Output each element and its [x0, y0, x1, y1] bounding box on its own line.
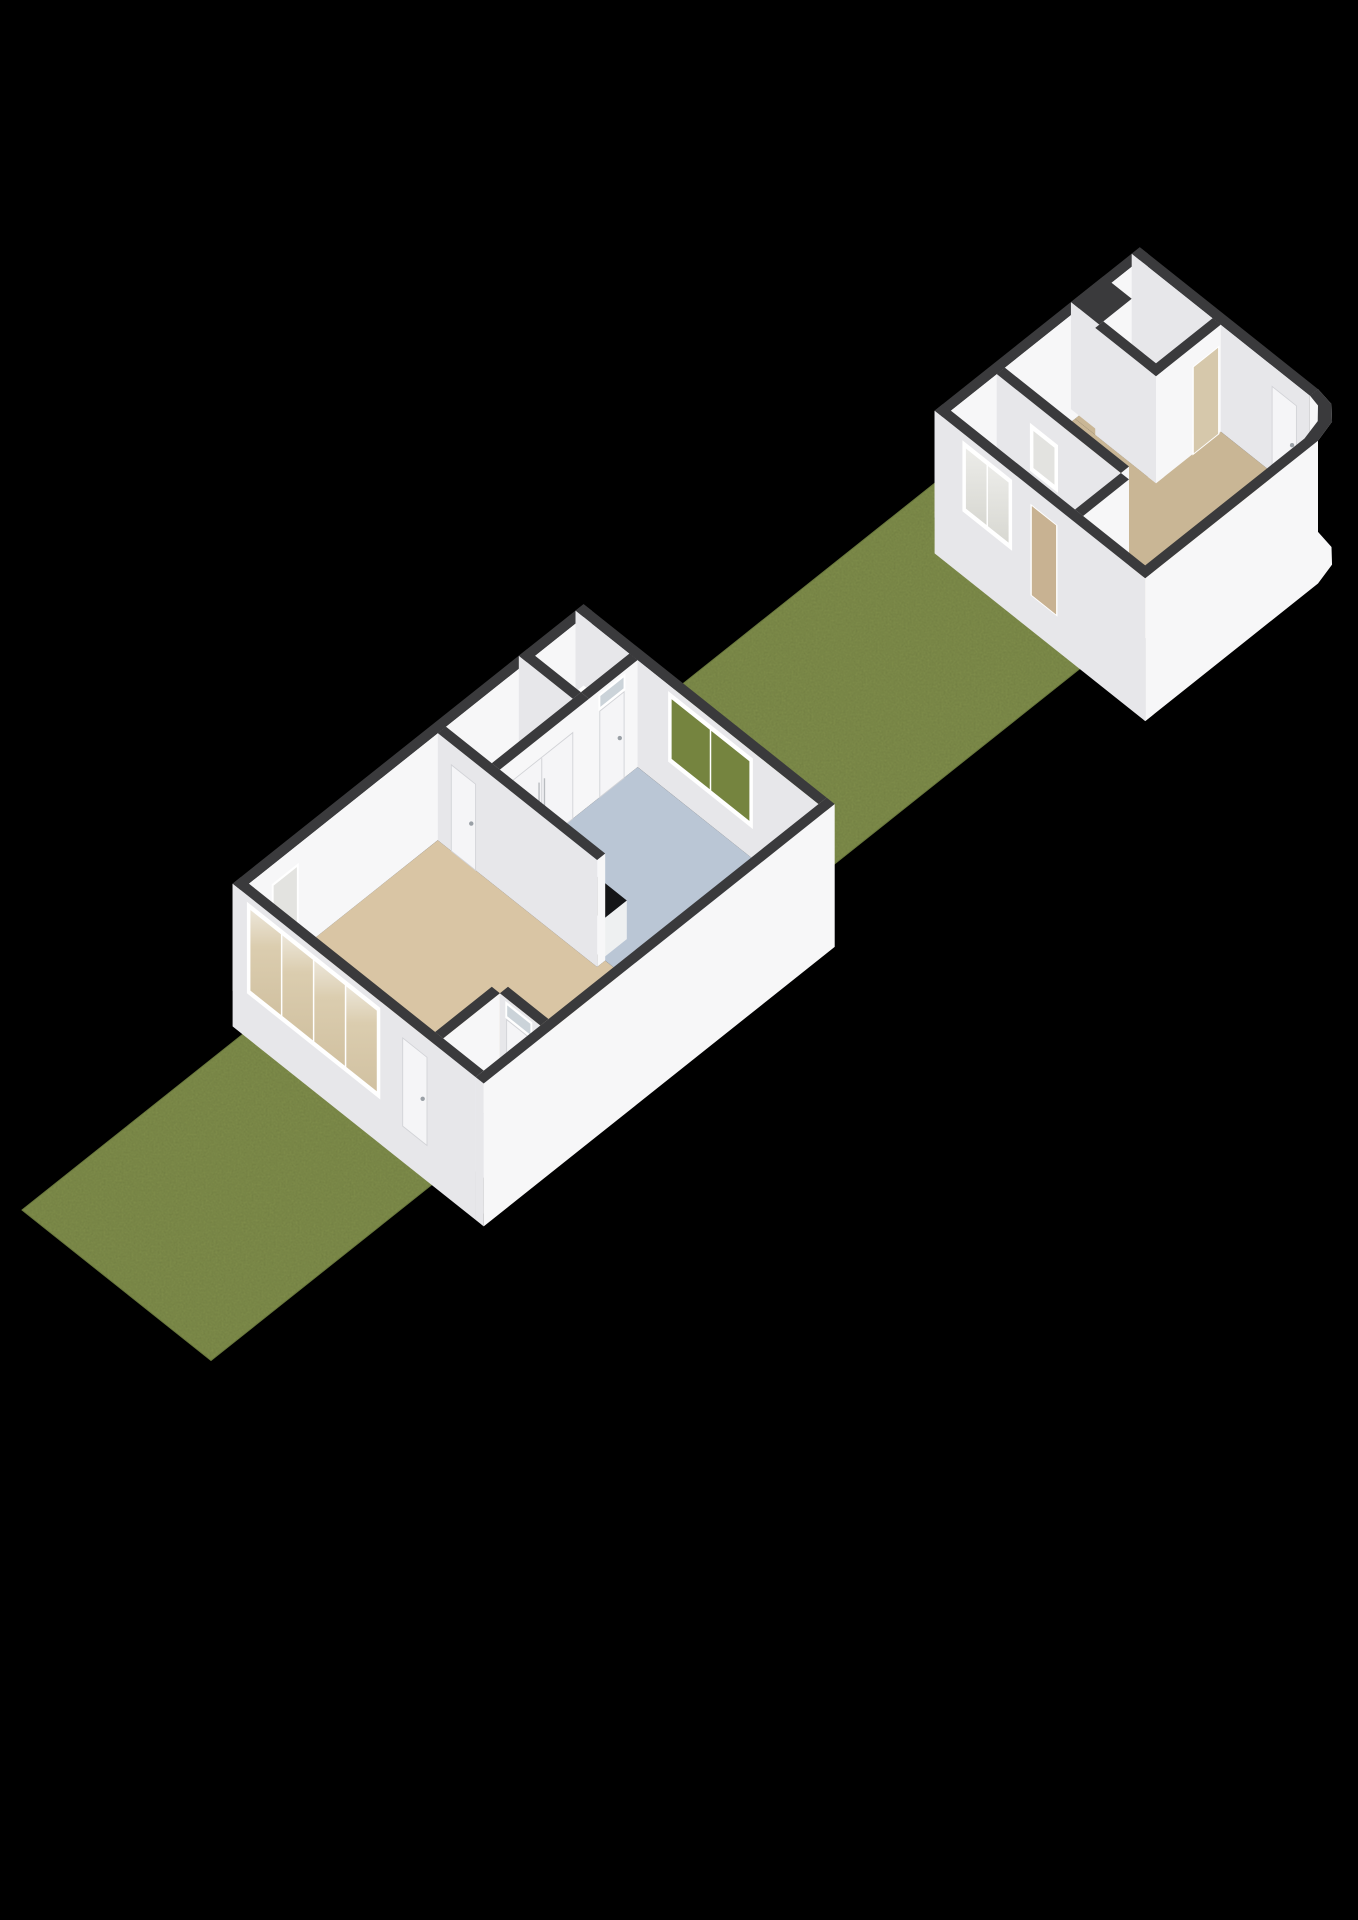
living-divider-wall-door-handle [469, 821, 473, 825]
floorplan-3d-scene [0, 0, 1358, 1920]
shed-notch-block-face-sw [1071, 302, 1099, 432]
front-facade-door-leaf [403, 1038, 427, 1146]
toilet-se-wall-door-handle [618, 736, 622, 740]
shed-ne-wall-door-handle [1290, 443, 1294, 447]
front-facade-door-handle [420, 1097, 424, 1101]
floorplan-3d-svg [0, 0, 1358, 1920]
living-divider-wall-face-se [597, 854, 605, 968]
house-se-wall-face-sw [476, 1077, 484, 1226]
shed-storage-se-wall-face-sw [1148, 370, 1156, 484]
